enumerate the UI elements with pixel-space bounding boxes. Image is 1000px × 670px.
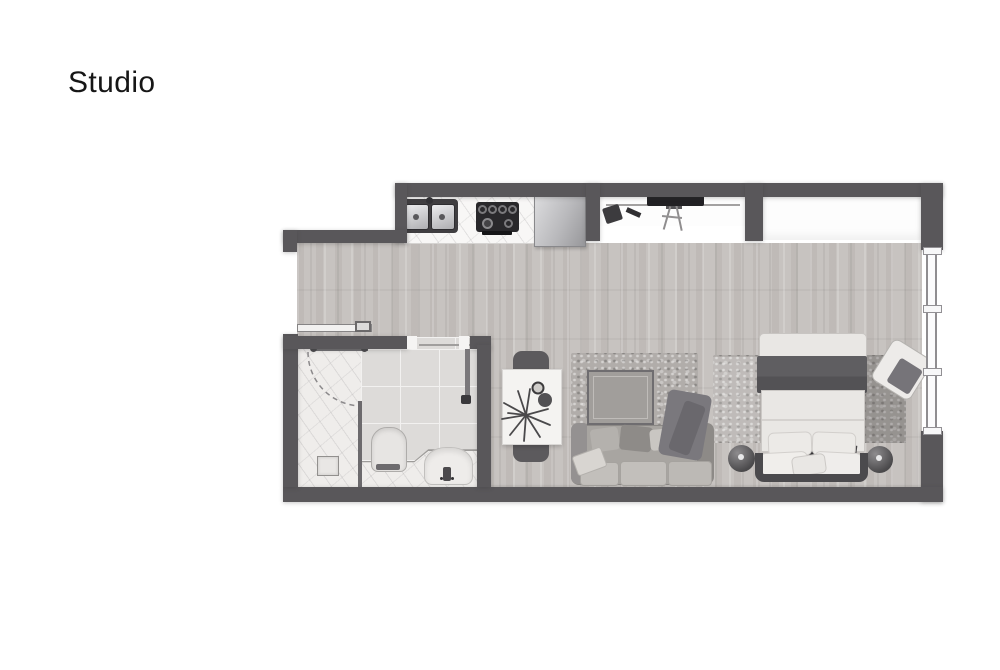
burner	[478, 205, 487, 214]
burner	[498, 205, 507, 214]
bathroom-door-handle	[461, 395, 471, 404]
shower-partition	[358, 401, 362, 487]
toilet-tank	[376, 464, 400, 470]
duvet-fold-line	[762, 419, 864, 421]
bed-blanket	[757, 356, 867, 393]
bathroom-door-leaf	[465, 349, 470, 399]
window-mullion-tick	[923, 305, 942, 313]
page: Studio	[0, 0, 1000, 670]
kitchen-faucet	[426, 197, 433, 204]
wall-bathroom-left	[283, 334, 298, 487]
chair-leg-line	[663, 206, 672, 230]
cooktop-controls	[482, 231, 512, 235]
window-mullion-tick	[923, 247, 942, 255]
shower-drain	[317, 456, 339, 476]
wall-top	[395, 183, 943, 197]
kitchen-sink	[401, 199, 458, 233]
burner	[488, 205, 497, 214]
bowl	[538, 393, 552, 407]
window-mullion-tick	[923, 368, 942, 376]
wall-bathroom-top-left	[283, 336, 408, 349]
burner	[482, 218, 493, 229]
closet-niche	[763, 192, 921, 240]
burner	[504, 219, 513, 228]
refrigerator	[534, 195, 586, 247]
window-mullion-tick	[923, 427, 942, 435]
headboard	[755, 453, 868, 482]
coffee-table	[587, 370, 654, 425]
wall-bathroom-right	[477, 345, 491, 487]
wall-bottom	[283, 487, 943, 502]
sink-faucet	[443, 467, 451, 481]
sofa-back-pillow	[619, 424, 653, 452]
bedroom-rug-light-patch	[713, 357, 759, 441]
faucet-knob-right	[451, 477, 454, 480]
sofa-seat-cushion	[620, 461, 667, 486]
sliding-door-handle	[355, 321, 371, 332]
door-swing-arc	[307, 351, 363, 407]
burner	[508, 205, 517, 214]
door-jamb-left	[407, 336, 417, 349]
table-plant	[498, 379, 562, 445]
wall-pier-kitchen-desk	[586, 183, 600, 241]
wall-upper-left	[283, 230, 407, 243]
wall-pier-desk-closet	[745, 183, 763, 241]
sofa-seat-cushion	[668, 461, 712, 486]
nightstand-vase	[876, 455, 882, 461]
nightstand-vase	[738, 454, 744, 460]
sink-drain-left	[413, 214, 419, 220]
wall-upper-left-pier	[283, 230, 297, 252]
wall-right-top	[921, 183, 943, 250]
plate	[533, 383, 544, 394]
coffee-table-inner-line	[593, 376, 648, 419]
desk-chair-sketch	[662, 205, 686, 231]
sink-drain-right	[439, 214, 445, 220]
window-right	[926, 249, 937, 432]
door-jamb-right	[459, 336, 469, 349]
floorplan	[0, 0, 1000, 670]
faucet-knob-left	[440, 477, 443, 480]
cooktop	[476, 202, 519, 232]
